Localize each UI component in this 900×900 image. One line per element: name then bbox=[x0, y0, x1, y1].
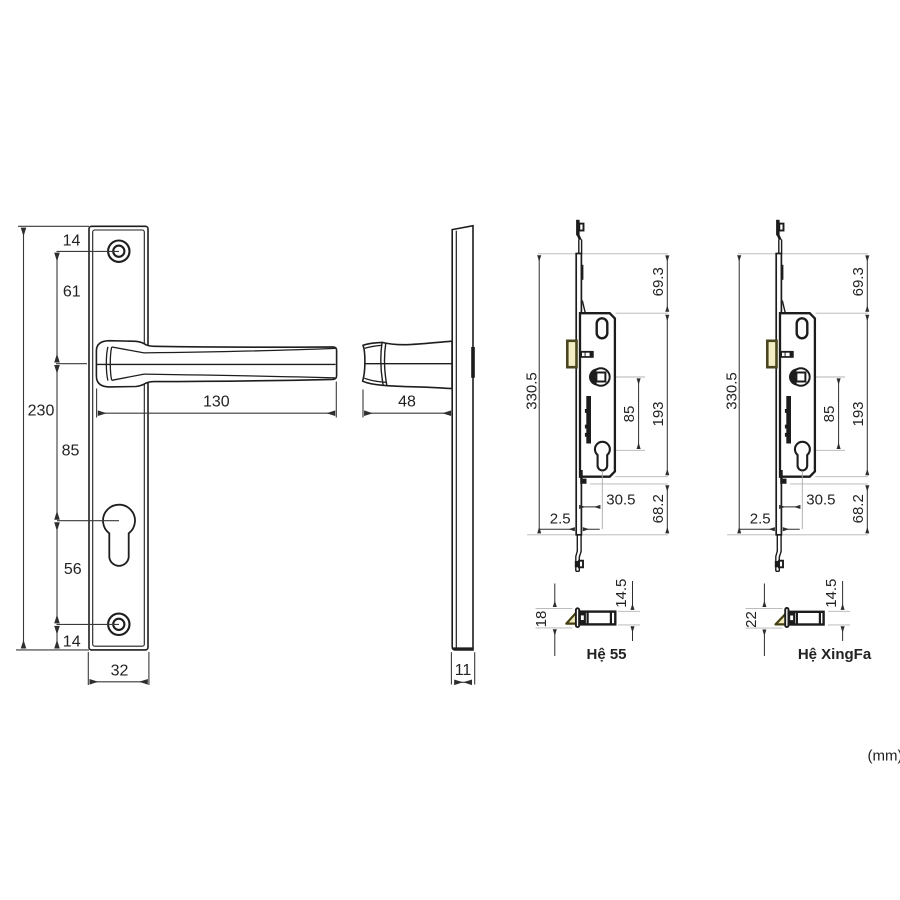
svg-text:14.5: 14.5 bbox=[823, 579, 840, 608]
svg-text:(mm): (mm) bbox=[868, 748, 900, 765]
svg-text:2.5: 2.5 bbox=[750, 510, 771, 527]
svg-text:68.2: 68.2 bbox=[650, 494, 667, 523]
svg-text:14: 14 bbox=[63, 634, 81, 651]
svg-text:30.5: 30.5 bbox=[806, 492, 835, 509]
svg-text:14: 14 bbox=[63, 232, 81, 249]
svg-text:69.3: 69.3 bbox=[650, 267, 667, 296]
svg-text:230: 230 bbox=[28, 403, 55, 420]
svg-text:30.5: 30.5 bbox=[606, 492, 635, 509]
svg-text:14.5: 14.5 bbox=[613, 579, 630, 608]
svg-text:85: 85 bbox=[62, 443, 80, 460]
svg-text:69.3: 69.3 bbox=[850, 267, 867, 296]
svg-text:2.5: 2.5 bbox=[550, 510, 571, 527]
svg-text:56: 56 bbox=[64, 561, 82, 578]
svg-text:18: 18 bbox=[533, 611, 550, 628]
svg-text:22: 22 bbox=[743, 611, 760, 628]
svg-text:Hệ 55: Hệ 55 bbox=[586, 646, 626, 663]
svg-text:68.2: 68.2 bbox=[850, 494, 867, 523]
svg-text:11: 11 bbox=[455, 662, 472, 679]
svg-text:48: 48 bbox=[398, 394, 416, 411]
svg-text:61: 61 bbox=[63, 283, 81, 300]
svg-text:130: 130 bbox=[203, 394, 230, 411]
svg-text:85: 85 bbox=[621, 406, 638, 423]
svg-text:Hệ XingFa: Hệ XingFa bbox=[798, 646, 872, 663]
svg-text:330.5: 330.5 bbox=[724, 372, 741, 410]
svg-text:32: 32 bbox=[111, 663, 129, 680]
svg-text:85: 85 bbox=[821, 406, 838, 423]
svg-text:193: 193 bbox=[850, 401, 867, 426]
svg-text:330.5: 330.5 bbox=[524, 372, 541, 410]
svg-text:193: 193 bbox=[650, 401, 667, 426]
